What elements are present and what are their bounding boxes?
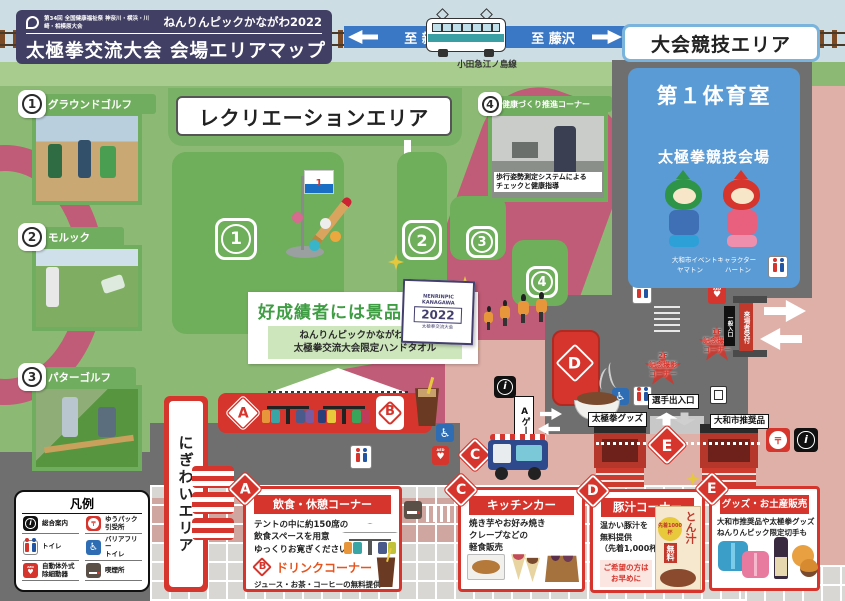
header-brand: ねんりんピックかながわ2022 <box>163 14 322 30</box>
photo-figure <box>98 407 116 437</box>
walking-person <box>484 306 494 330</box>
aed-icon: AED♥ <box>23 563 38 578</box>
kitchen-truck <box>488 434 548 480</box>
spot-3-badge: 3 <box>466 226 498 258</box>
booth-c-box: キッチンカー 焼き芋やお好み焼き クレープなどの 軽食販売 <box>458 487 585 592</box>
toilet-icon <box>23 540 38 555</box>
legend-box: 凡例 i総合案内 〒ゆうパック 引受所 トイレ ♿バリアフリー トイレ AED♥… <box>14 490 150 592</box>
taichi-jacket-pink <box>742 551 769 578</box>
header-title: 太極拳交流大会 会場エリアマップ <box>26 37 322 63</box>
photo2-label: モルック <box>40 227 124 247</box>
info-icon: i <box>794 428 818 452</box>
goods-booth-right <box>700 424 758 468</box>
competition-area-box: 大会競技エリア <box>622 24 820 62</box>
smoking-icon <box>86 563 101 578</box>
flag-number: 1 <box>316 178 323 189</box>
sweet-potato-bag <box>545 550 579 582</box>
photo4-caption: 歩行姿勢測定システムによる チェックと健康指導 <box>494 172 602 192</box>
towel-logo: NENRINPIC KANAGAWA <box>422 293 455 306</box>
walking-person <box>518 294 530 324</box>
banner-b-mark: B <box>376 404 404 419</box>
booth-e-box: グッズ・お土産販売 大和市推奨品や太極拳グッズ ねんりんピック限定切手も <box>709 486 820 591</box>
booth-e-title: グッズ・お土産販売 <box>720 495 809 514</box>
tonjiru-poster: とん汁 先着1000杯 無料 <box>655 506 701 590</box>
mascot-left-name: ヤマトン <box>677 264 703 274</box>
elevator-icon <box>710 386 727 404</box>
drink-title: ドリンクコーナー <box>276 559 372 576</box>
photo2-number: 2 <box>18 223 46 251</box>
photo1-label: グラウンドゴルフ <box>40 94 156 114</box>
train <box>426 10 506 54</box>
photo3-number: 3 <box>18 363 46 391</box>
towel-year: 2022 <box>414 306 462 324</box>
ball-pink <box>292 212 303 223</box>
photo3-label: パターゴルフ <box>40 367 136 387</box>
souvenir-cake <box>800 559 818 577</box>
table-set-icon <box>262 399 314 427</box>
photo-figure <box>44 435 134 453</box>
mascot-yamaton <box>662 176 706 250</box>
ball-white <box>320 218 331 229</box>
crepe-cone <box>525 554 540 582</box>
booth-b-row: B ドリンクコーナー <box>254 559 372 576</box>
venue-map: { "header": { "event_no": "第34回 全国健康福祉祭 … <box>0 0 845 601</box>
smoking-icon <box>404 501 422 519</box>
gym-hall-box: 第１体育室 太極拳競技会場 大和市イベントキャラクター ヤマトン ハートン <box>628 68 800 288</box>
toilet-icon <box>768 256 788 278</box>
booth-a-box: 飲食・休憩コーナー テントの中に約150席の 飲食スペースを用意 ゆっくりお寛ぎ… <box>243 486 402 592</box>
photo-figure <box>62 397 78 437</box>
photo-figure <box>100 274 125 294</box>
to-fujisawa-label: 至 藤沢 <box>531 28 575 47</box>
walking-person <box>536 292 548 323</box>
striped-stall <box>192 492 234 514</box>
nenrin-logo-icon <box>26 16 39 29</box>
photo1-number: 1 <box>18 90 46 118</box>
mini-tent <box>342 523 398 533</box>
info-icon: i <box>23 516 38 531</box>
aed-icon: AED♥ <box>432 446 449 465</box>
entrance-sign: 一般入口 <box>724 306 735 346</box>
prize-towel: NENRINPIC KANAGAWA 2022 太極拳交流大会 <box>401 279 475 345</box>
legend-item: 喫煙所 <box>85 561 142 581</box>
to-fujisawa-banner: 至 藤沢 <box>506 26 626 48</box>
walking-person <box>500 300 511 327</box>
banner-b-box: B <box>376 396 404 430</box>
barrier-free-icon: ♿ <box>86 540 101 555</box>
photo-figure <box>48 144 62 178</box>
booth-c-title: キッチンカー <box>469 496 574 515</box>
poster-free: 無料 <box>664 543 677 563</box>
ball-teal <box>309 240 320 251</box>
prize-headline: 好成績者には景品も <box>258 298 420 323</box>
photo1 <box>32 112 142 205</box>
photo-corner-2f-label: 2F 記念撮影 コーナー <box>636 352 690 378</box>
toilet-icon <box>350 445 372 469</box>
spot-1-badge: 1 <box>215 218 257 260</box>
barrier-free-icon: ♿ <box>436 424 454 442</box>
competition-area-label: 大会競技エリア <box>651 30 791 57</box>
striped-stall <box>192 466 234 488</box>
header-box: 第34回 全国健康福祉祭 神奈川・横浜・川崎・相模原大会 ねんりんピックかながわ… <box>16 10 332 64</box>
players-gate-label: 選手出入口 <box>648 394 699 409</box>
photo-figure <box>46 267 59 307</box>
photo4-number: 4 <box>478 92 502 116</box>
poster-bowl <box>660 569 695 587</box>
legend-item: AED♥自動体外式 除細動器 <box>22 561 79 581</box>
legend-item: 〒ゆうパック 引受所 <box>85 514 142 534</box>
towel-caption: 太極拳交流大会 <box>422 323 454 330</box>
booth-a-body: テントの中に約150席の 飲食スペースを用意 ゆっくりお寛ぎください <box>254 519 348 556</box>
photo-figure <box>78 140 91 178</box>
drink-body: ジュース・お茶・コーヒーの無料提供 <box>254 579 381 590</box>
yamato-goods-label: 大和市推奨品 <box>710 414 769 429</box>
photo4: 歩行姿勢測定システムによる チェックと健康指導 <box>488 112 608 202</box>
booth-d-note: ご希望の方は お早めに <box>600 560 652 587</box>
mascot-haton <box>720 176 764 250</box>
recreation-title: レクリエーションエリア <box>199 102 430 131</box>
photo-figure <box>100 146 116 178</box>
legend-item: i総合案内 <box>22 514 79 534</box>
photo-figure <box>512 142 538 158</box>
mascot-right-name: ハートン <box>725 264 751 274</box>
venue-name: 太極拳競技会場 <box>628 146 800 167</box>
drink-cup <box>376 551 396 587</box>
spot-2-badge: 2 <box>402 220 442 260</box>
reception-sign: 来場者受付 <box>739 303 753 351</box>
drink-cup <box>414 380 440 426</box>
legend-item: トイレ <box>22 534 79 561</box>
booth-c-body: 焼き芋やお好み焼き クレープなどの 軽食販売 <box>469 519 546 555</box>
photo3 <box>32 385 142 471</box>
taichi-goods-label: 太極拳グッズ <box>588 412 647 427</box>
hall-name: 第１体育室 <box>628 80 800 110</box>
booth-e-body: 大和市推奨品や太極拳グッズ ねんりんピック限定切手も <box>717 517 815 539</box>
souvenir-bottle <box>774 537 788 579</box>
ball-orange <box>330 231 341 242</box>
arrow-left-icon <box>348 30 378 44</box>
stairs <box>654 306 680 336</box>
poster-product: とん汁 <box>682 511 698 544</box>
poster-count: 先着1000杯 <box>658 517 682 541</box>
goods-booth-left <box>594 424 646 468</box>
golf-flag: 1 <box>304 170 334 194</box>
yupack-icon: 〒 <box>86 516 101 531</box>
fence <box>426 504 454 522</box>
gate-bar-top <box>733 296 767 303</box>
legend-item: ♿バリアフリー トイレ <box>85 534 142 561</box>
photo2 <box>32 245 142 331</box>
booth-a-title: 飲食・休憩コーナー <box>254 495 391 514</box>
header-event-no: 第34回 全国健康福祉祭 神奈川・横浜・川崎・相模原大会 <box>44 14 158 30</box>
yupack-icon: 〒 <box>766 428 790 452</box>
gate-bar-bottom <box>733 350 767 357</box>
okonomiyaki-box <box>467 554 505 580</box>
table-set-icon <box>318 399 370 427</box>
photo4-label: 健康づくり推進コーナー <box>498 96 612 112</box>
striped-stall <box>192 518 234 540</box>
legend-title: 凡例 <box>22 495 142 514</box>
booth-d-box: 豚汁コーナー 温かい豚汁を 無料提供 （先着1,000杯） ご希望の方は お早め… <box>590 489 705 593</box>
crepe-cone <box>511 550 526 580</box>
arrow-right-icon <box>592 30 622 44</box>
b-mark-box: B <box>254 559 271 576</box>
line-name: 小田急江ノ島線 <box>432 52 542 71</box>
recreation-title-box: レクリエーションエリア <box>176 96 452 136</box>
info-icon: i <box>494 376 516 398</box>
